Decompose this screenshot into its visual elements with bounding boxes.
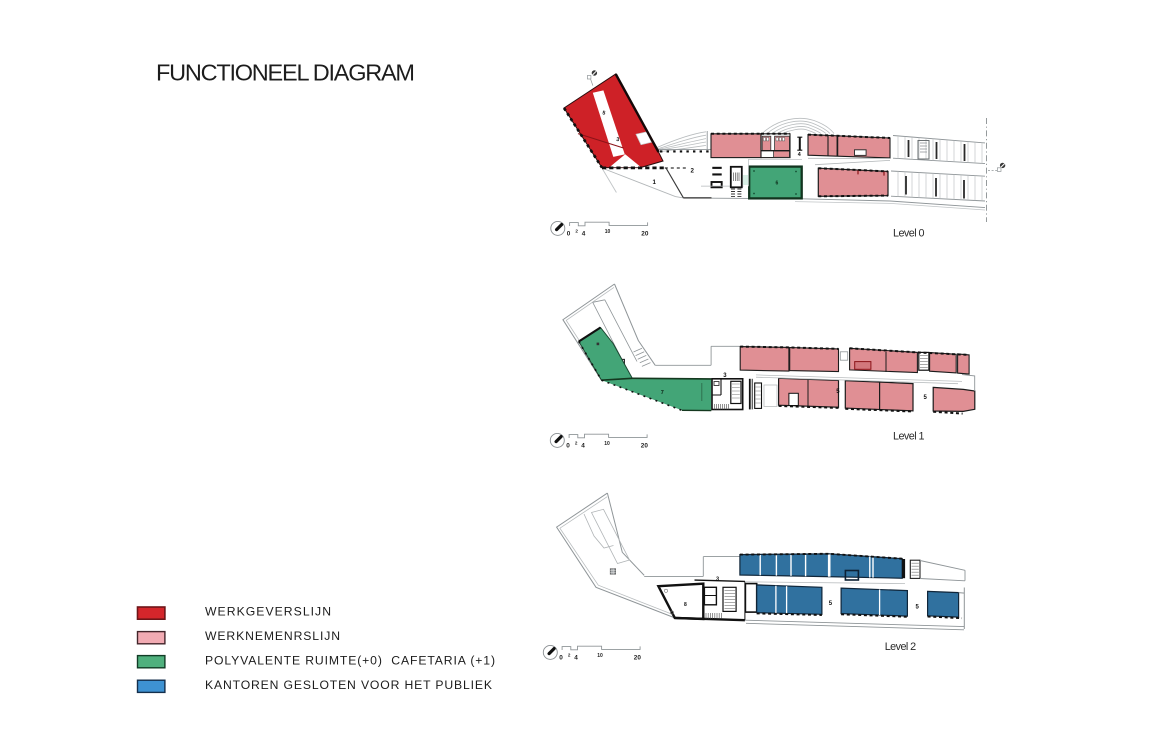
svg-text:WERKGEVERSLIJN: WERKGEVERSLIJN <box>205 605 331 619</box>
svg-text:KANTOREN GESLOTEN VOOR HET PUB: KANTOREN GESLOTEN VOOR HET PUBLIEK <box>205 678 492 692</box>
svg-text:4: 4 <box>582 230 586 237</box>
svg-text:5: 5 <box>829 601 833 607</box>
svg-text:8: 8 <box>684 602 687 608</box>
svg-text:10: 10 <box>605 229 611 235</box>
svg-text:3: 3 <box>716 577 719 583</box>
svg-text:2: 2 <box>575 229 578 234</box>
svg-text:5: 5 <box>916 605 920 611</box>
svg-text:1: 1 <box>653 179 657 186</box>
svg-text:5: 5 <box>924 395 928 401</box>
svg-text:POLYVALENTE RUIMTE(+0) CAFETA: POLYVALENTE RUIMTE(+0) CAFETARIA (+1) <box>205 654 495 668</box>
svg-text:20: 20 <box>641 231 649 238</box>
svg-text:6: 6 <box>776 181 779 187</box>
svg-text:Level 2: Level 2 <box>885 641 917 653</box>
svg-text:5: 5 <box>836 389 840 395</box>
svg-text:Level 1: Level 1 <box>893 431 925 443</box>
svg-text:FUNCTIONEEL DIAGRAM: FUNCTIONEEL DIAGRAM <box>156 60 415 86</box>
svg-text:WERKNEMENRSLIJN: WERKNEMENRSLIJN <box>205 629 340 643</box>
svg-text:7: 7 <box>661 390 664 396</box>
svg-text:Level 0: Level 0 <box>893 228 925 240</box>
svg-text:0: 0 <box>567 230 571 237</box>
svg-text:4: 4 <box>798 152 801 158</box>
svg-text:2: 2 <box>691 168 695 175</box>
